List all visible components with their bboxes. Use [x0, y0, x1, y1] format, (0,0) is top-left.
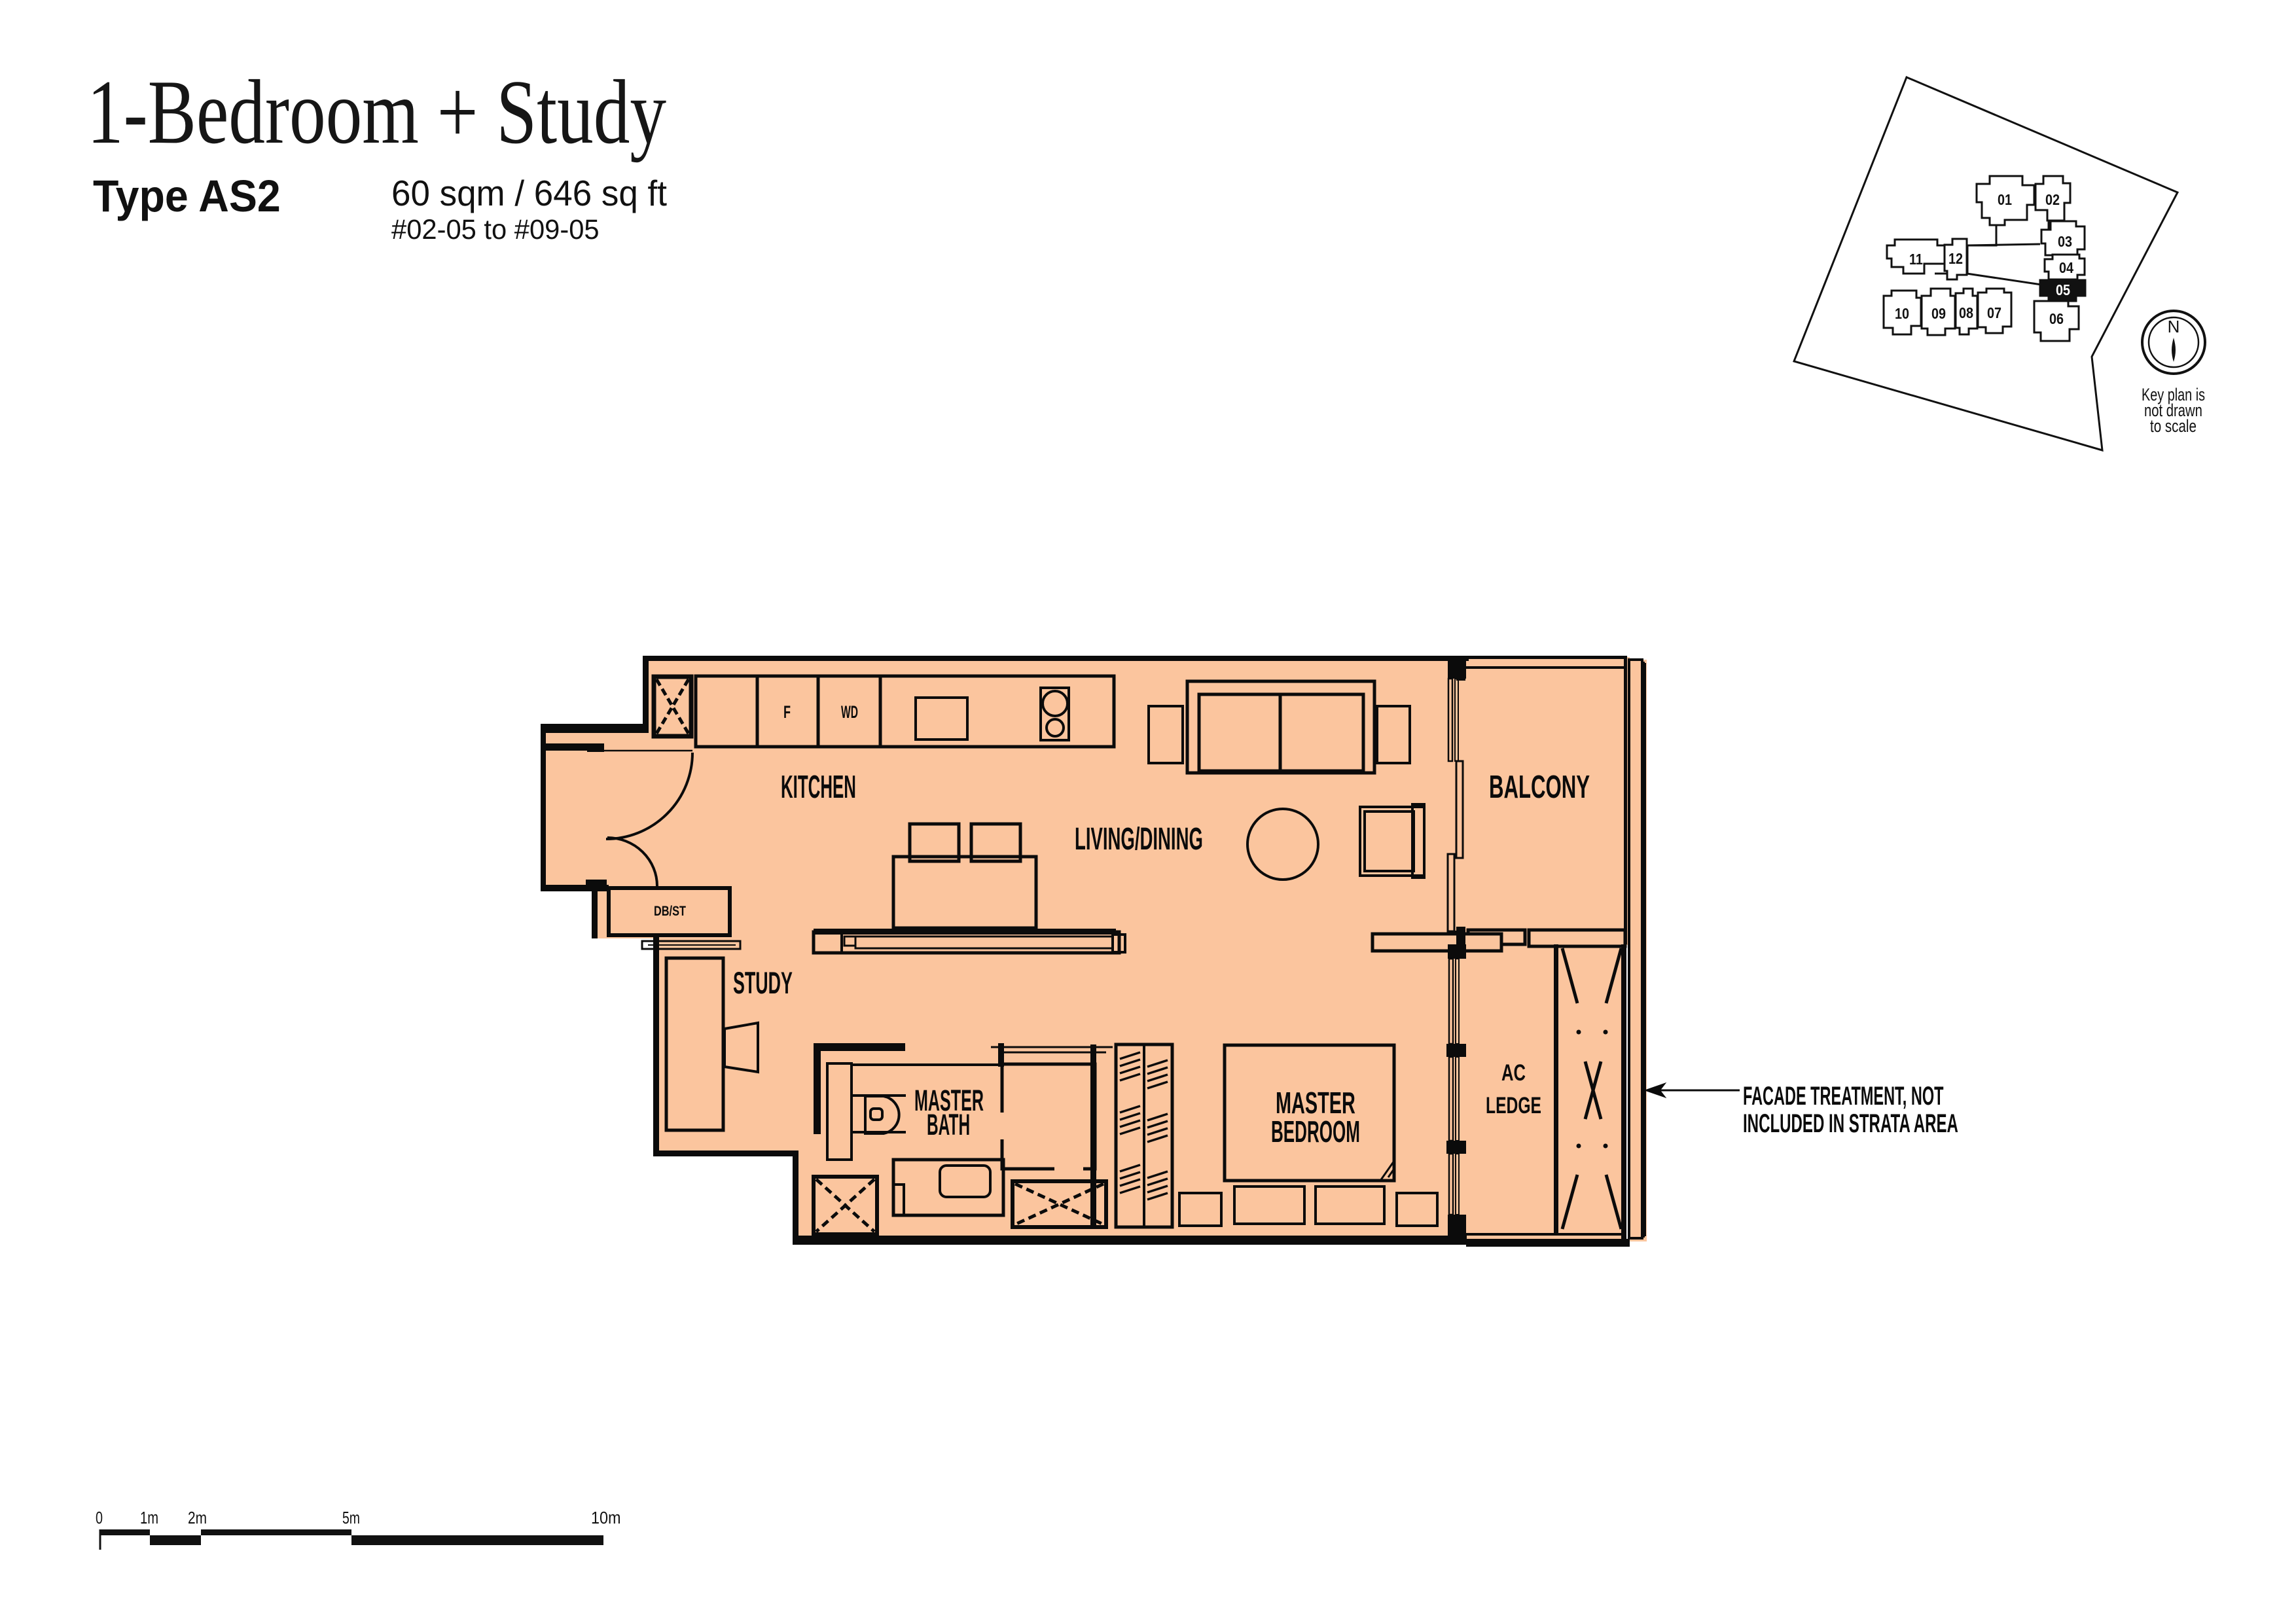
svg-text:LIVING/DINING: LIVING/DINING	[1075, 822, 1203, 857]
svg-text:03: 03	[2058, 234, 2072, 251]
svg-text:KITCHEN: KITCHEN	[781, 770, 856, 805]
svg-text:09: 09	[1931, 306, 1946, 323]
svg-text:DB/ST: DB/ST	[654, 903, 686, 918]
svg-text:12: 12	[1948, 251, 1963, 268]
svg-text:10: 10	[1895, 306, 1909, 323]
svg-text:STUDY: STUDY	[733, 966, 793, 1001]
svg-text:Type AS2: Type AS2	[93, 171, 281, 221]
svg-text:#02-05 to #09-05: #02-05 to #09-05	[391, 213, 600, 245]
svg-text:2m: 2m	[188, 1508, 207, 1527]
svg-text:BATH: BATH	[927, 1108, 970, 1141]
svg-text:1-Bedroom + Study: 1-Bedroom + Study	[87, 62, 666, 163]
svg-text:BALCONY: BALCONY	[1489, 769, 1590, 805]
svg-text:05: 05	[2056, 282, 2070, 299]
svg-text:60 sqm / 646 sq ft: 60 sqm / 646 sq ft	[391, 173, 667, 213]
svg-text:INCLUDED IN STRATA AREA: INCLUDED IN STRATA AREA	[1743, 1109, 1958, 1138]
svg-text:5m: 5m	[342, 1508, 360, 1527]
svg-text:to scale: to scale	[2150, 416, 2197, 436]
svg-text:1m: 1m	[140, 1508, 158, 1527]
svg-text:04: 04	[2059, 260, 2073, 277]
svg-text:08: 08	[1959, 305, 1973, 322]
svg-text:02: 02	[2045, 192, 2060, 209]
svg-text:11: 11	[1909, 251, 1923, 268]
svg-text:BEDROOM: BEDROOM	[1271, 1115, 1360, 1149]
svg-text:FACADE TREATMENT, NOT: FACADE TREATMENT, NOT	[1743, 1080, 1943, 1110]
svg-text:F: F	[783, 702, 791, 722]
svg-text:01: 01	[1998, 192, 2012, 209]
svg-text:06: 06	[2049, 311, 2064, 328]
svg-text:0: 0	[96, 1508, 103, 1527]
svg-text:07: 07	[1987, 305, 2001, 322]
svg-text:LEDGE: LEDGE	[1486, 1094, 1541, 1118]
svg-text:N: N	[2168, 317, 2180, 336]
svg-text:WD: WD	[841, 702, 858, 722]
svg-text:10m: 10m	[591, 1509, 620, 1527]
svg-text:AC: AC	[1501, 1060, 1526, 1086]
